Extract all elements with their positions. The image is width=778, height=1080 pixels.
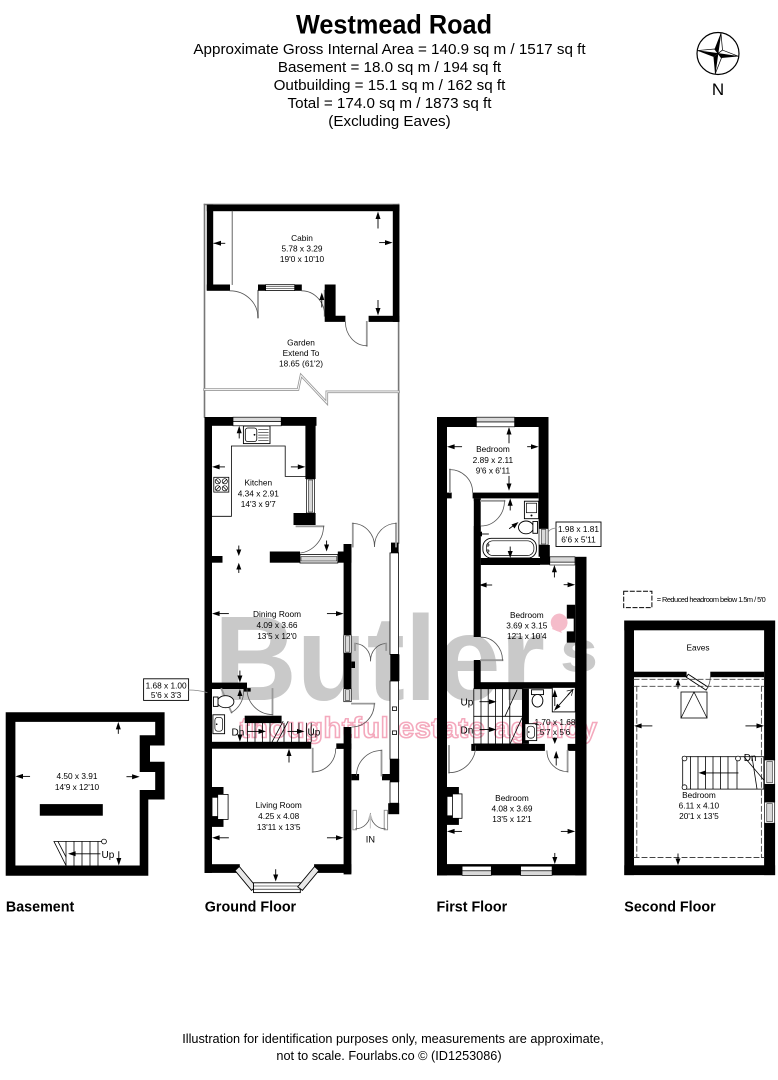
svg-text:13'5 x 12'0: 13'5 x 12'0 (257, 631, 297, 641)
svg-text:14'3 x 9'7: 14'3 x 9'7 (241, 499, 276, 509)
svg-text:= Reduced headroom below 1.5m: = Reduced headroom below 1.5m / 5'0 (657, 595, 766, 604)
svg-text:19'0 x 10'10: 19'0 x 10'10 (280, 254, 325, 264)
svg-text:Westmead Road: Westmead Road (296, 9, 492, 39)
svg-text:Kitchen: Kitchen (244, 477, 272, 487)
svg-text:Extend To: Extend To (283, 348, 320, 358)
svg-text:5'7 x 5'6: 5'7 x 5'6 (540, 727, 571, 737)
svg-text:Eaves: Eaves (686, 643, 709, 653)
svg-text:(Excluding Eaves): (Excluding Eaves) (328, 113, 450, 130)
svg-text:Garden: Garden (287, 338, 315, 348)
svg-text:4.50 x 3.91: 4.50 x 3.91 (56, 771, 97, 781)
svg-text:18.65 (61'2): 18.65 (61'2) (279, 359, 323, 369)
svg-text:Bedroom: Bedroom (476, 444, 510, 454)
svg-text:Dn: Dn (232, 728, 245, 739)
svg-text:Up: Up (308, 728, 321, 739)
svg-text:First Floor: First Floor (437, 900, 508, 916)
svg-text:4.34 x 2.91: 4.34 x 2.91 (238, 489, 279, 499)
svg-text:3.69 x 3.15: 3.69 x 3.15 (506, 621, 547, 631)
svg-text:Cabin: Cabin (291, 233, 313, 243)
svg-text:14'9 x 12'10: 14'9 x 12'10 (55, 782, 100, 792)
svg-text:4.08 x 3.69: 4.08 x 3.69 (491, 804, 532, 814)
svg-text:2.89 x 2.11: 2.89 x 2.11 (473, 455, 514, 465)
svg-text:1.68 x 1.00: 1.68 x 1.00 (146, 680, 187, 690)
svg-text:1.70 x 1.68: 1.70 x 1.68 (534, 717, 575, 727)
svg-text:5.78 x 3.29: 5.78 x 3.29 (281, 244, 322, 254)
svg-text:5'6 x 3'3: 5'6 x 3'3 (151, 690, 182, 700)
svg-text:Living Room: Living Room (256, 800, 302, 810)
svg-text:13'11 x 13'5: 13'11 x 13'5 (257, 822, 301, 832)
svg-text:Dn: Dn (461, 726, 474, 737)
svg-text:Outbuilding = 15.1 sq m / 162: Outbuilding = 15.1 sq m / 162 sq ft (274, 77, 507, 94)
svg-text:Basement = 18.0 sq m / 194 sq: Basement = 18.0 sq m / 194 sq ft (278, 59, 502, 76)
svg-text:Dn: Dn (744, 753, 757, 764)
svg-text:Up: Up (102, 850, 115, 861)
svg-text:12'1 x 10'4: 12'1 x 10'4 (507, 631, 547, 641)
svg-text:Bedroom: Bedroom (510, 610, 544, 620)
svg-text:IN: IN (366, 835, 375, 845)
svg-text:Second Floor: Second Floor (624, 900, 716, 916)
svg-text:4.09 x 3.66: 4.09 x 3.66 (256, 620, 297, 630)
svg-text:1.98 x 1.81: 1.98 x 1.81 (558, 524, 599, 534)
svg-text:N: N (712, 80, 724, 99)
svg-text:Bedroom: Bedroom (495, 793, 529, 803)
svg-text:Bedroom: Bedroom (682, 790, 716, 800)
svg-text:6.11 x 4.10: 6.11 x 4.10 (679, 801, 720, 811)
svg-text:Illustration for identificatio: Illustration for identification purposes… (182, 1032, 603, 1046)
svg-text:20'1 x 13'5: 20'1 x 13'5 (679, 811, 719, 821)
svg-text:6'6 x 5'11: 6'6 x 5'11 (561, 535, 596, 545)
svg-text:4.25 x 4.08: 4.25 x 4.08 (258, 811, 299, 821)
svg-text:9'6 x 6'11: 9'6 x 6'11 (476, 466, 511, 476)
svg-text:Basement: Basement (6, 900, 75, 916)
svg-text:13'5 x 12'1: 13'5 x 12'1 (492, 814, 532, 824)
svg-text:Ground Floor: Ground Floor (205, 900, 297, 916)
svg-text:Up: Up (461, 698, 474, 709)
svg-text:Total = 174.0 sq m / 1873 sq f: Total = 174.0 sq m / 1873 sq ft (288, 95, 493, 112)
svg-text:Approximate Gross Internal Are: Approximate Gross Internal Area = 140.9 … (193, 41, 586, 58)
svg-text:Dining Room: Dining Room (253, 609, 301, 619)
svg-text:not to scale. Fourlabs.co © (I: not to scale. Fourlabs.co © (ID1253086) (276, 1049, 501, 1063)
